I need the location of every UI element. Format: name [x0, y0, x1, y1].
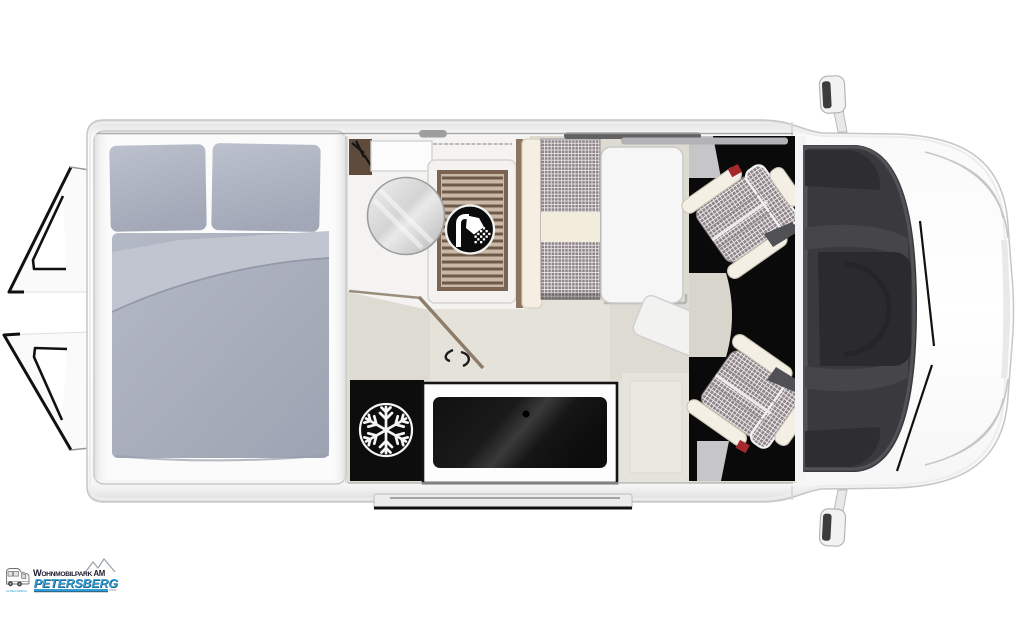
svg-text:PETERSBERG: PETERSBERG	[33, 576, 120, 590]
svg-text:ALPEN ARENA: ALPEN ARENA	[6, 589, 27, 593]
svg-text:WWW: WWW	[109, 588, 117, 592]
